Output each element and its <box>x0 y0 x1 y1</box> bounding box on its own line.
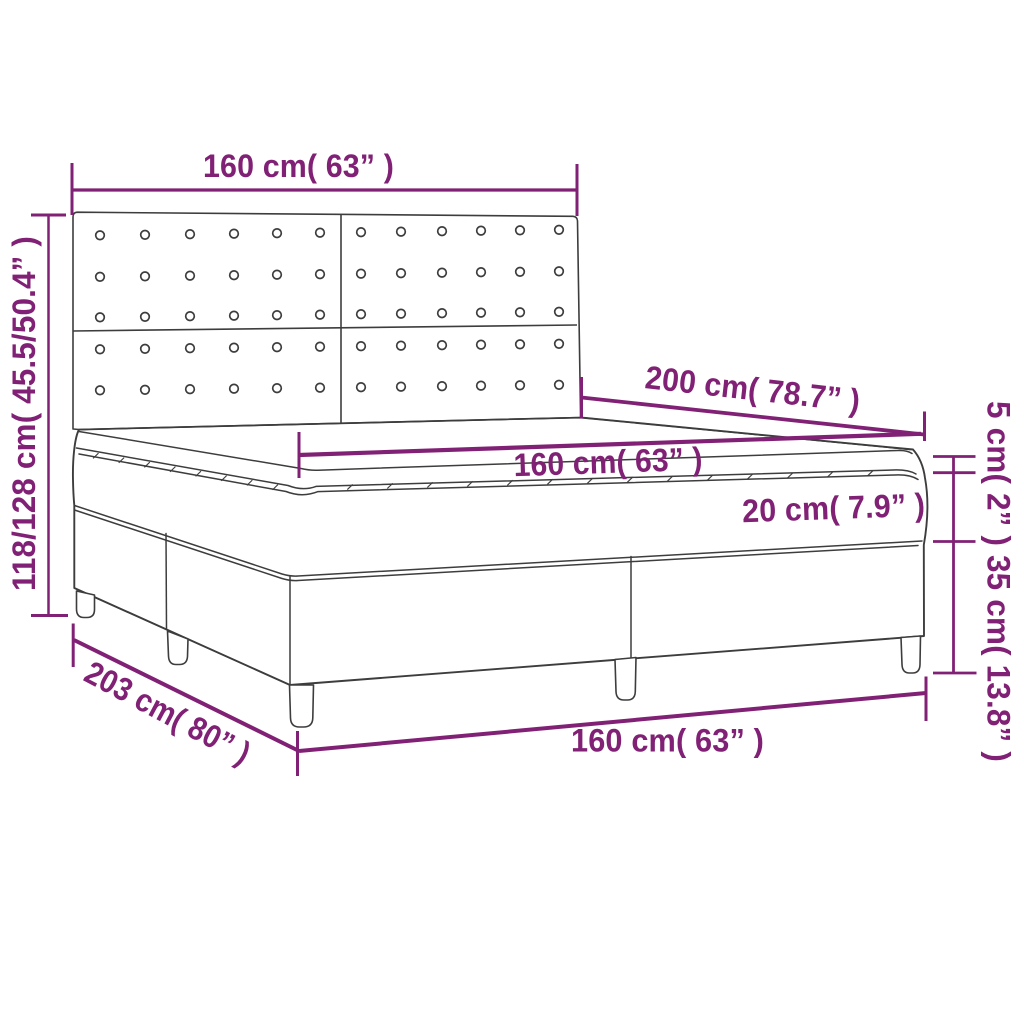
svg-text:118/128 cm( 45.5/50.4” ): 118/128 cm( 45.5/50.4” ) <box>6 236 42 591</box>
svg-text:5 cm( 2” ) 35 cm( 13.8” ): 5 cm( 2” ) 35 cm( 13.8” ) <box>981 401 1017 762</box>
svg-text:160 cm( 63” ): 160 cm( 63” ) <box>571 723 764 759</box>
svg-text:160 cm( 63” ): 160 cm( 63” ) <box>203 148 394 184</box>
svg-text:20 cm( 7.9” ): 20 cm( 7.9” ) <box>742 487 926 529</box>
svg-text:160 cm( 63” ): 160 cm( 63” ) <box>513 441 703 484</box>
